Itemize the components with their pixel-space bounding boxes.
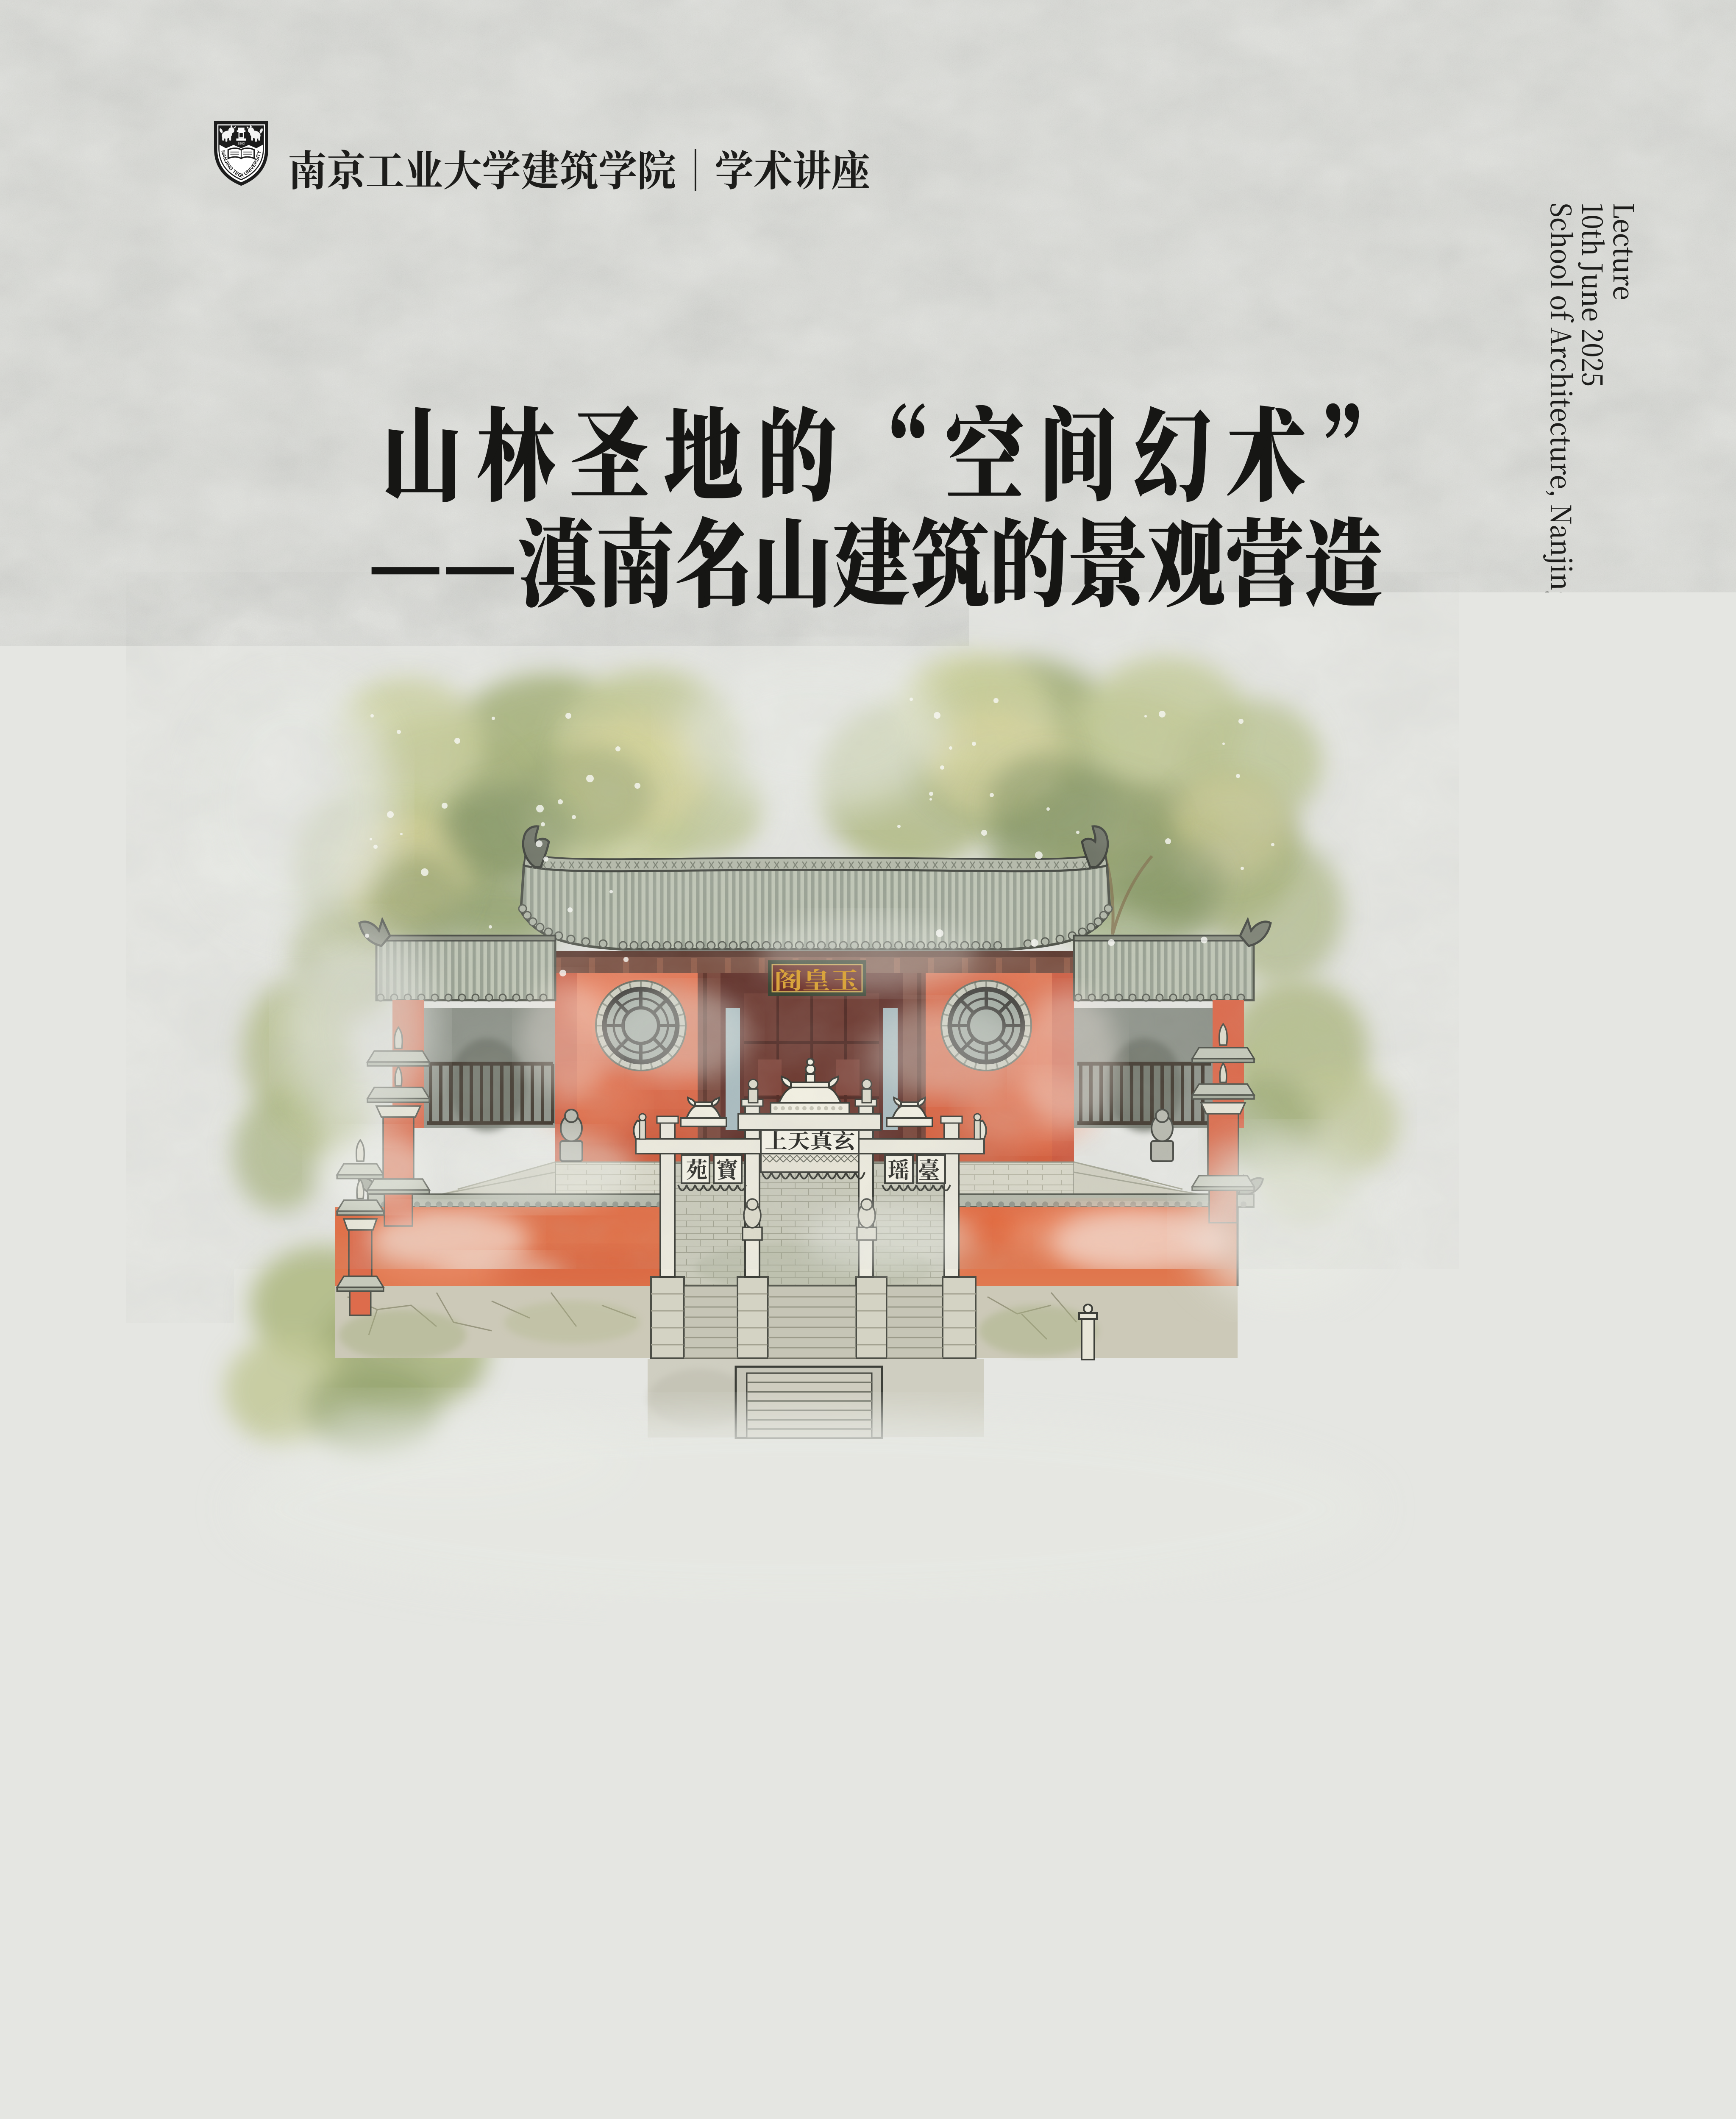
svg-text:5M: 5M: [1392, 1530, 1419, 1552]
svg-text:1902: 1902: [237, 142, 245, 145]
svg-text:1: 1: [1207, 1530, 1219, 1552]
svg-text:4: 4: [1345, 1530, 1356, 1552]
svg-text:0: 0: [1161, 1530, 1172, 1552]
svg-text:3: 3: [1299, 1530, 1310, 1552]
svg-text:2: 2: [1253, 1530, 1264, 1552]
